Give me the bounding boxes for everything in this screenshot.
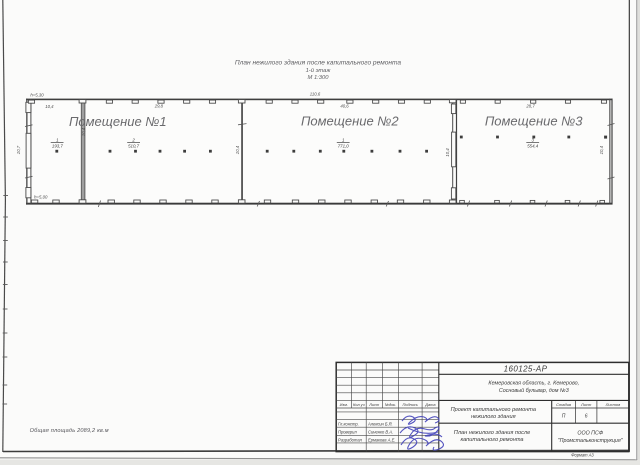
svg-text:Синенко В.А.: Синенко В.А.: [368, 430, 393, 435]
svg-text:160125-АР: 160125-АР: [504, 365, 548, 374]
svg-text:Ермакова А.Е.: Ермакова А.Е.: [368, 437, 395, 442]
svg-text:771,0: 771,0: [338, 144, 350, 149]
svg-text:Гл.констр.: Гл.констр.: [338, 422, 359, 427]
svg-text:"Промстальконструкция": "Промстальконструкция": [558, 438, 624, 444]
svg-text:№док.: №док.: [385, 402, 396, 407]
svg-text:h=5,30: h=5,30: [30, 92, 44, 97]
svg-text:Лист: Лист: [580, 402, 592, 407]
svg-text:нежилого здания: нежилого здания: [471, 414, 516, 420]
svg-text:Кол.уч: Кол.уч: [353, 402, 365, 407]
svg-text:2: 2: [131, 138, 135, 143]
svg-text:6: 6: [585, 414, 588, 420]
svg-text:40,6: 40,6: [340, 104, 349, 109]
svg-text:Формат А3: Формат А3: [571, 453, 594, 458]
svg-text:29,8: 29,8: [154, 104, 164, 109]
svg-text:капитального ремонта: капитального ремонта: [460, 437, 523, 443]
svg-text:510,7: 510,7: [128, 144, 140, 149]
svg-text:h=5,00: h=5,00: [34, 195, 48, 200]
svg-text:П: П: [562, 414, 566, 420]
svg-text:Алексин Б.Я.: Алексин Б.Я.: [367, 422, 393, 427]
svg-text:1-й этаж: 1-й этаж: [306, 67, 332, 74]
svg-text:Дата: Дата: [424, 402, 436, 407]
svg-text:Лист: Лист: [368, 402, 380, 407]
svg-text:10,4: 10,4: [235, 145, 240, 154]
svg-text:Кемеровская область, г. Кемеро: Кемеровская область, г. Кемерово,: [488, 380, 579, 386]
svg-text:Стадия: Стадия: [556, 402, 572, 407]
svg-text:Разработал: Разработал: [338, 437, 363, 442]
svg-text:Общая площадь 2089,2 кв.м: Общая площадь 2089,2 кв.м: [30, 428, 109, 434]
svg-text:Листов: Листов: [605, 402, 621, 407]
svg-text:10,7: 10,7: [16, 145, 21, 154]
svg-text:193,7: 193,7: [52, 144, 64, 149]
svg-text:Сосновый бульвар, дом №3: Сосновый бульвар, дом №3: [499, 387, 569, 394]
svg-text:10,4: 10,4: [599, 145, 604, 154]
svg-text:Проверил: Проверил: [338, 430, 357, 435]
svg-text:Изм.: Изм.: [340, 402, 348, 407]
svg-text:М 1:300: М 1:300: [308, 75, 330, 81]
svg-text:План нежилого здания после: План нежилого здания после: [454, 430, 530, 436]
svg-text:Помещение №1: Помещение №1: [69, 114, 167, 129]
svg-text:554,4: 554,4: [527, 143, 539, 148]
svg-text:Подпись: Подпись: [402, 402, 417, 407]
svg-text:28,7: 28,7: [525, 104, 535, 109]
svg-text:ООО ПСФ: ООО ПСФ: [577, 431, 603, 437]
svg-text:План нежилого здания после кап: План нежилого здания после капитального …: [235, 59, 402, 67]
svg-text:Проект капитального ремонта: Проект капитального ремонта: [451, 407, 536, 413]
svg-text:Помещение №3: Помещение №3: [485, 114, 583, 129]
svg-text:10,4: 10,4: [81, 127, 86, 136]
svg-text:110,6: 110,6: [310, 91, 321, 96]
svg-text:10,4: 10,4: [45, 104, 54, 109]
svg-text:Помещение №2: Помещение №2: [301, 114, 399, 129]
svg-text:10,4: 10,4: [445, 148, 450, 157]
